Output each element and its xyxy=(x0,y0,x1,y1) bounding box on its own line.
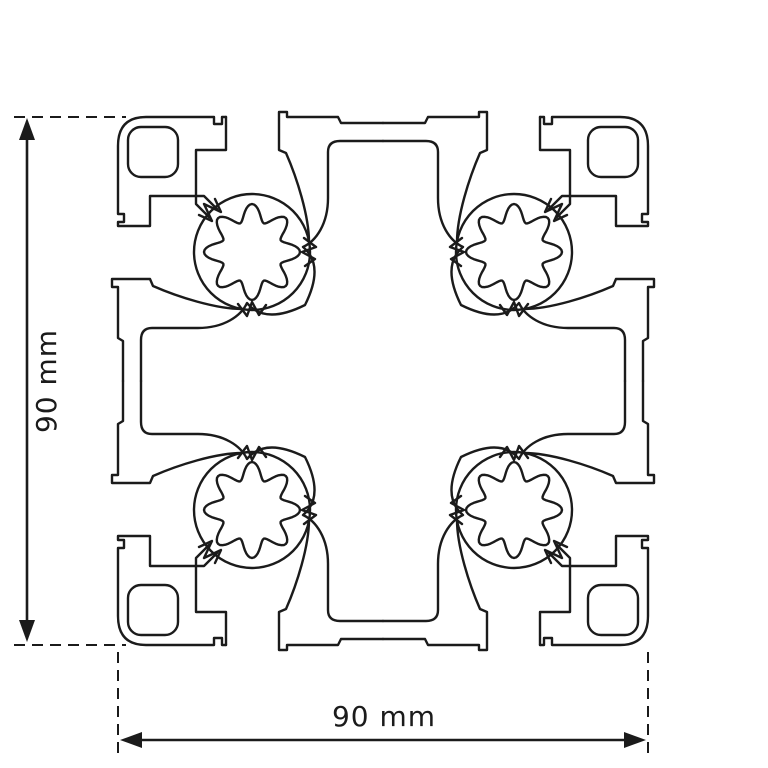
outer-face-left xyxy=(112,381,242,483)
arrow-up-icon xyxy=(19,118,35,140)
central-cavity xyxy=(383,141,625,381)
width-dimension: 90 mm xyxy=(118,652,648,760)
width-dimension-label: 90 mm xyxy=(332,700,436,733)
height-dimension: 90 mm xyxy=(14,117,126,645)
outer-face-top xyxy=(279,112,383,242)
hub-wall xyxy=(456,452,572,568)
central-cavity xyxy=(141,381,383,621)
corner-hole xyxy=(588,127,638,177)
outer-face-left xyxy=(112,279,242,381)
profile-drawing: 90 mm 90 mm xyxy=(0,0,768,768)
profile-quadrant-top-left xyxy=(112,112,383,381)
hub-wall xyxy=(194,194,310,310)
profile-quadrant-bottom-left xyxy=(112,381,383,650)
gear-hole xyxy=(204,204,300,300)
outer-face-top xyxy=(383,112,487,242)
corner-block-outline xyxy=(118,536,226,645)
gear-hole xyxy=(204,462,300,558)
corner-block-outline xyxy=(540,117,648,226)
outer-face-top xyxy=(383,520,487,650)
height-dimension-label: 90 mm xyxy=(30,329,63,433)
gear-hole xyxy=(466,204,562,300)
central-cavity xyxy=(383,381,625,621)
outer-face-left xyxy=(524,279,654,381)
arrow-left-icon xyxy=(120,732,142,748)
corner-hole xyxy=(588,585,638,635)
central-cavity xyxy=(141,141,383,381)
corner-hole xyxy=(128,127,178,177)
arrow-down-icon xyxy=(19,620,35,642)
technical-drawing-canvas: 90 mm 90 mm xyxy=(0,0,768,768)
arrow-right-icon xyxy=(624,732,646,748)
gear-hole xyxy=(466,462,562,558)
outer-face-left xyxy=(524,381,654,483)
hub-wall xyxy=(456,194,572,310)
hub-wall xyxy=(194,452,310,568)
extrusion-profile xyxy=(112,112,654,650)
profile-quadrant-bottom-right xyxy=(383,381,654,650)
corner-block-outline xyxy=(540,536,648,645)
corner-block-outline xyxy=(118,117,226,226)
outer-face-top xyxy=(279,520,383,650)
profile-quadrant-top-right xyxy=(383,112,654,381)
corner-hole xyxy=(128,585,178,635)
